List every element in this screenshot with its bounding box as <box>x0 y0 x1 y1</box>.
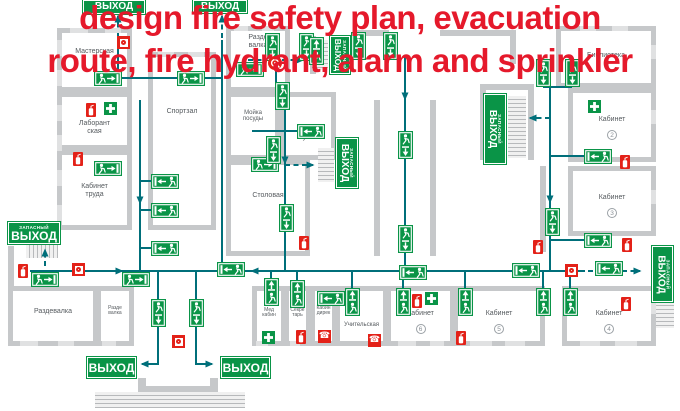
window-segment <box>651 300 656 314</box>
evacuation-direction-sign <box>399 226 412 252</box>
first-aid-icon <box>588 100 601 113</box>
window-segment <box>651 45 656 59</box>
window-segment <box>615 341 637 346</box>
staircase <box>95 392 245 408</box>
exit-sign-main-text: ВЫХОД <box>11 230 57 242</box>
extinguisher-icon <box>296 330 306 344</box>
extinguisher-icon <box>456 331 466 345</box>
exit-sign: ЗАПАСНЫЙВЫХОД <box>652 246 673 302</box>
exit-sign-text: ЗАПАСНЫЙВЫХОД <box>652 246 673 302</box>
evacuation-direction-sign <box>178 72 204 85</box>
evacuation-direction-sign <box>513 264 539 277</box>
window-segment <box>430 341 444 346</box>
evacuation-direction-sign <box>280 205 293 231</box>
room-number: 4 <box>604 324 614 334</box>
exit-sign-text: ВЫХОД <box>95 2 133 12</box>
evacuation-direction-sign <box>152 175 178 188</box>
staircase <box>318 148 334 182</box>
evacuation-direction-sign <box>397 289 410 315</box>
extinguisher-icon <box>622 238 632 252</box>
evacuation-direction-sign <box>566 60 579 86</box>
exit-sign-main-text: ВЫХОД <box>340 144 350 182</box>
evacuation-direction-sign <box>190 300 203 326</box>
extinguisher-icon <box>18 264 28 278</box>
exit-sign-main-text: ВЫХОД <box>223 362 269 374</box>
room-number: 6 <box>416 324 426 334</box>
exit-sign-main-text: ВЫХОД <box>89 362 135 374</box>
window-segment <box>105 28 121 33</box>
exit-sign-main-text: ВЫХОД <box>488 110 498 148</box>
window-segment <box>57 70 62 86</box>
window-segment <box>234 26 248 31</box>
evacuation-direction-sign <box>352 33 365 59</box>
fire-alarm-button-icon <box>72 263 85 276</box>
evacuation-direction-sign <box>95 162 121 175</box>
window-segment <box>188 52 204 57</box>
extinguisher-icon <box>412 294 422 308</box>
exit-sign-text: ВЫХОД <box>201 2 239 12</box>
window-segment <box>57 40 62 56</box>
evacuation-direction-sign <box>585 234 611 247</box>
evacuation-direction-sign <box>400 266 426 279</box>
room-number: 5 <box>494 324 504 334</box>
first-aid-icon <box>104 102 117 115</box>
evacuation-direction-sign <box>152 242 178 255</box>
evacuation-direction-sign <box>218 263 244 276</box>
room-outline <box>226 160 310 256</box>
room-outline <box>96 286 134 346</box>
evacuation-direction-sign <box>95 72 121 85</box>
evacuation-direction-sign <box>399 132 412 158</box>
extinguisher-icon <box>533 240 543 254</box>
room-number: 3 <box>607 208 617 218</box>
evacuation-direction-sign <box>537 60 550 86</box>
window-segment <box>470 341 492 346</box>
wall-segment <box>430 100 436 256</box>
window-segment <box>398 341 416 346</box>
extinguisher-icon <box>73 152 83 166</box>
evacuation-direction-sign <box>384 33 397 59</box>
fire-phone-icon: ☎ <box>318 330 331 343</box>
evacuation-direction-sign <box>276 83 289 109</box>
evacuation-direction-sign <box>459 289 472 315</box>
evacuation-direction-sign <box>291 281 304 307</box>
evacuation-direction-sign <box>346 289 359 315</box>
staircase <box>26 245 58 258</box>
fire-phone-icon: ☎ <box>368 334 381 347</box>
evacuation-direction-sign <box>152 300 165 326</box>
exit-sign: ЗАПАСНЫЙВЫХОД <box>8 222 60 244</box>
extinguisher-icon <box>299 236 309 250</box>
window-segment <box>651 190 656 204</box>
fire-alarm-button-icon <box>117 36 130 49</box>
evacuation-plan: design fire safety plan, evacuation rout… <box>0 0 680 411</box>
window-segment <box>580 341 600 346</box>
evacuation-direction-sign <box>546 209 559 235</box>
wall-segment <box>480 84 534 90</box>
evacuation-direction-sign <box>152 204 178 217</box>
evacuation-direction-sign <box>585 150 611 163</box>
evacuation-direction-sign <box>298 125 324 138</box>
evacuation-direction-sign <box>318 292 344 305</box>
exit-sign: ВЫХОД <box>193 0 247 13</box>
room-number: 2 <box>607 130 617 140</box>
exit-sign-text: ВЫХОД <box>89 362 135 374</box>
evacuation-direction-sign <box>310 38 323 64</box>
window-segment <box>70 28 88 33</box>
window-segment <box>57 170 62 186</box>
wall-segment <box>528 84 534 160</box>
extinguisher-icon <box>621 297 631 311</box>
evacuation-direction-sign <box>267 137 280 163</box>
room-outline <box>8 286 98 346</box>
exit-sign-text: ЗАПАСНЫЙВЫХОД <box>484 94 506 164</box>
staircase <box>656 302 674 328</box>
evacuation-direction-sign <box>596 262 622 275</box>
wall-segment <box>8 246 14 288</box>
first-aid-icon <box>262 331 275 344</box>
exit-sign: ВЫХОД <box>221 357 270 378</box>
exit-sign-main-text: ВЫХОД <box>333 39 342 71</box>
wall-segment <box>374 100 380 256</box>
exit-sign-text: ВЫХОД <box>223 362 269 374</box>
exit-sign: ЗАПАСНЫЙВЫХОД <box>484 94 506 164</box>
alarm-button-face <box>568 267 576 275</box>
exit-sign: ЗАПАСНЫЙВЫХОД <box>336 138 358 188</box>
exit-sign-main-text: ВЫХОД <box>95 2 133 12</box>
exit-sign-main-text: ВЫХОД <box>655 255 665 293</box>
first-aid-icon <box>425 292 438 305</box>
exit-sign-small-text: ЗАПАСНЫЙ <box>498 114 503 144</box>
exit-sign-text: ЗАПАСНЫЙВЫХОД <box>336 138 358 188</box>
alarm-button-face <box>175 338 183 346</box>
window-segment <box>20 341 38 346</box>
window-segment <box>57 105 62 121</box>
room-outline <box>568 166 656 236</box>
window-segment <box>505 341 525 346</box>
wall-segment <box>510 30 516 64</box>
extinguisher-icon <box>620 155 630 169</box>
window-segment <box>580 26 596 31</box>
staircase <box>508 96 526 158</box>
window-segment <box>612 26 628 31</box>
exit-sign: ЗАПАСНЫЙВЫХОД <box>330 36 350 74</box>
alarm-button-face <box>75 266 83 274</box>
exit-sign-small-text: ЗАПАСНЫЙ <box>350 148 355 178</box>
exit-sign: ВЫХОД <box>87 357 136 378</box>
hydrant-icon <box>268 56 282 70</box>
wall-segment <box>440 30 516 36</box>
exit-sign: ВЫХОД <box>83 0 145 14</box>
evacuation-direction-sign <box>32 273 58 286</box>
evacuation-direction-sign <box>265 279 278 305</box>
fire-alarm-button-icon <box>565 264 578 277</box>
evacuation-direction-sign <box>537 289 550 315</box>
room-outline <box>568 88 656 162</box>
exit-sign-text: ЗАПАСНЫЙВЫХОД <box>330 36 350 74</box>
window-segment <box>158 52 174 57</box>
exit-sign-text: ЗАПАСНЫЙВЫХОД <box>11 225 57 242</box>
evacuation-direction-sign <box>237 63 263 76</box>
room-outline <box>57 92 132 150</box>
evacuation-direction-sign <box>564 289 577 315</box>
window-segment <box>102 341 116 346</box>
window-segment <box>262 26 274 31</box>
window-segment <box>57 135 62 151</box>
exit-sign-main-text: ВЫХОД <box>201 2 239 12</box>
window-segment <box>651 110 656 124</box>
fire-alarm-button-icon <box>172 335 185 348</box>
alarm-button-face <box>120 39 128 47</box>
extinguisher-icon <box>86 103 96 117</box>
window-segment <box>58 341 74 346</box>
evacuation-direction-sign <box>123 273 149 286</box>
window-segment <box>57 205 62 221</box>
